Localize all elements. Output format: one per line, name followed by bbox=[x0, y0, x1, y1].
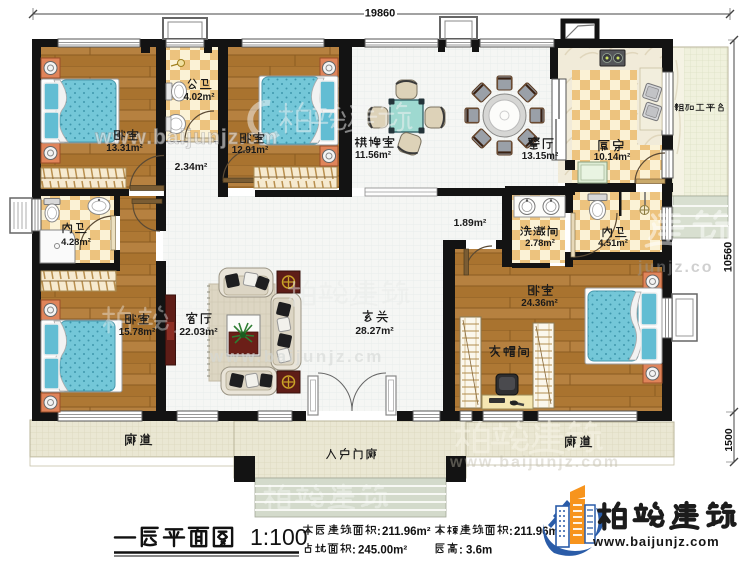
svg-text::: : bbox=[377, 526, 381, 538]
svg-text:13.31m²: 13.31m² bbox=[106, 143, 143, 154]
svg-text:2.34m²: 2.34m² bbox=[175, 162, 208, 173]
svg-text:19860: 19860 bbox=[365, 8, 396, 20]
svg-text:28.27m²: 28.27m² bbox=[355, 326, 394, 337]
svg-text:1.89m²: 1.89m² bbox=[454, 218, 487, 229]
svg-text:15.78m²: 15.78m² bbox=[119, 327, 156, 338]
svg-text:24.36m²: 24.36m² bbox=[521, 298, 558, 309]
svg-text:4.51m²: 4.51m² bbox=[598, 237, 628, 248]
svg-text:10.14m²: 10.14m² bbox=[594, 152, 631, 163]
svg-text:245.00m²: 245.00m² bbox=[358, 545, 407, 557]
svg-text:4.28m²: 4.28m² bbox=[61, 236, 91, 247]
svg-text::: : bbox=[352, 545, 356, 557]
svg-text:13.15m²: 13.15m² bbox=[522, 151, 559, 162]
svg-text:22.03m²: 22.03m² bbox=[179, 327, 218, 338]
svg-text:2.78m²: 2.78m² bbox=[525, 237, 555, 248]
svg-text::: : bbox=[509, 526, 513, 538]
svg-text:1:100: 1:100 bbox=[250, 524, 308, 550]
svg-text::: : bbox=[459, 545, 463, 557]
svg-text:junjz.co: junjz.co bbox=[637, 259, 714, 276]
svg-text:www.baijunjz.com: www.baijunjz.com bbox=[592, 534, 720, 549]
svg-text:211.96m²: 211.96m² bbox=[382, 526, 431, 538]
svg-text:3.6m: 3.6m bbox=[466, 545, 492, 557]
svg-text:4.02m²: 4.02m² bbox=[183, 92, 215, 103]
svg-text:12.91m²: 12.91m² bbox=[232, 145, 269, 156]
svg-text:www.baijunjz.cm: www.baijunjz.cm bbox=[209, 347, 384, 366]
svg-text:1500: 1500 bbox=[723, 428, 735, 452]
svg-text:11.56m²: 11.56m² bbox=[355, 150, 392, 161]
svg-text:www.baijunjz.com: www.baijunjz.com bbox=[449, 454, 620, 471]
svg-text:10560: 10560 bbox=[723, 242, 735, 273]
